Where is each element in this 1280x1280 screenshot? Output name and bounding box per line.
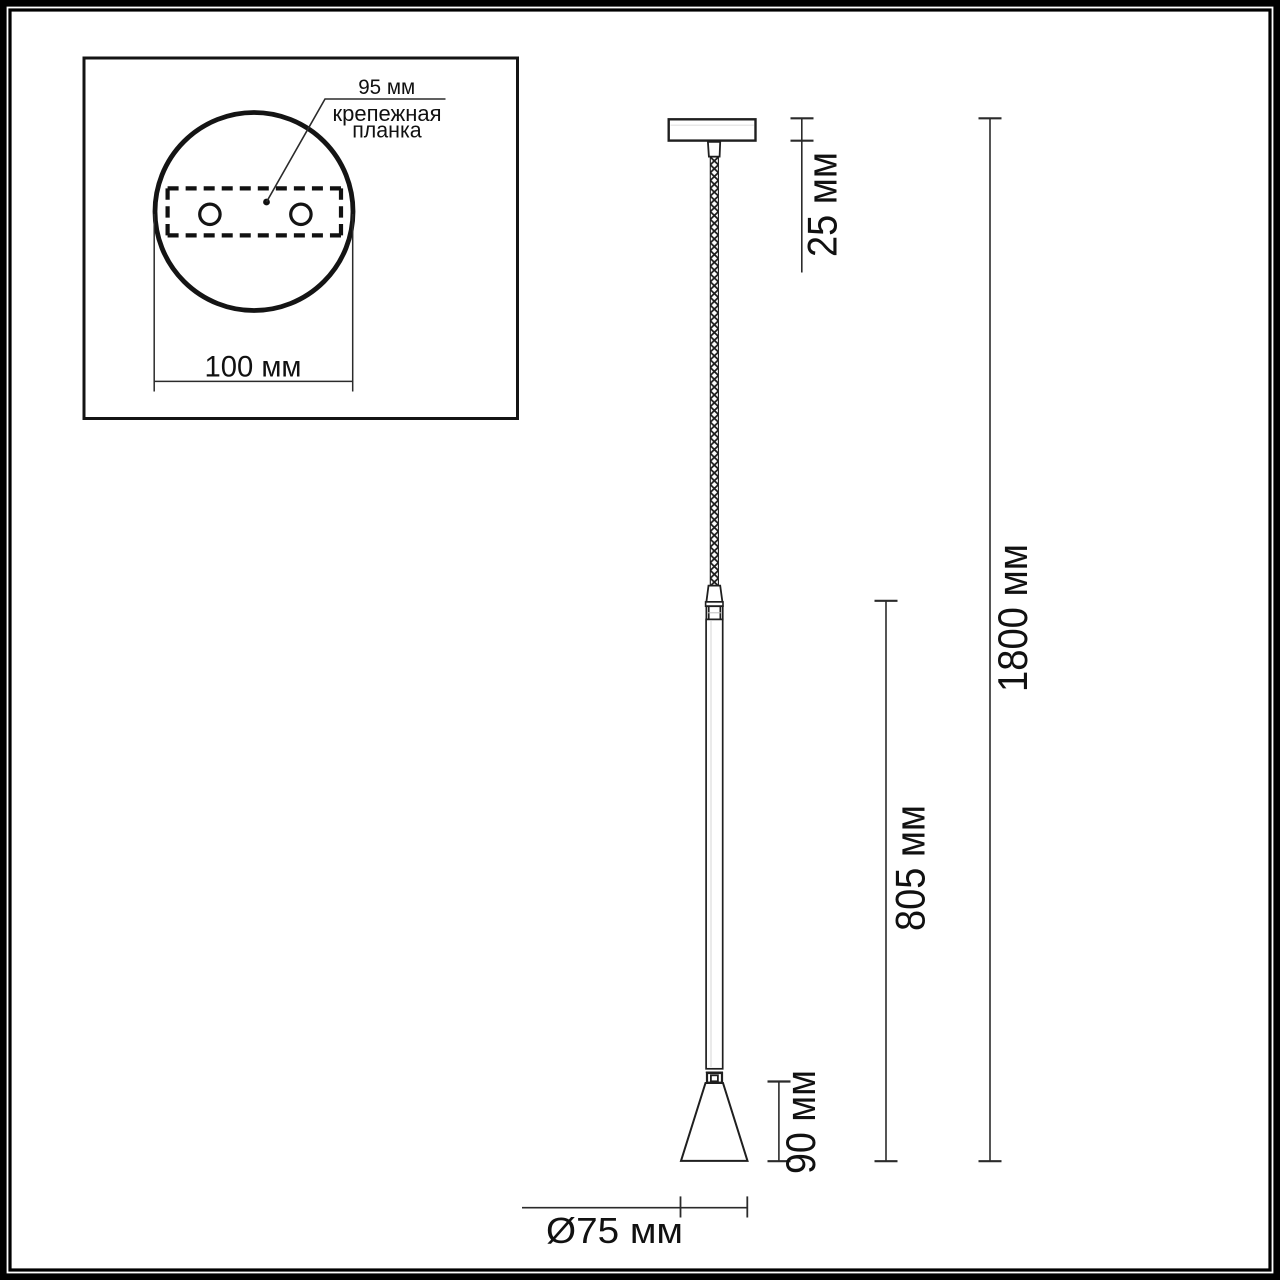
svg-text:планка: планка: [352, 117, 422, 142]
svg-text:Ø75 мм: Ø75 мм: [546, 1210, 683, 1251]
svg-text:90 мм: 90 мм: [777, 1070, 824, 1174]
svg-text:100 мм: 100 мм: [205, 351, 302, 384]
svg-text:805 мм: 805 мм: [887, 805, 934, 931]
svg-text:1800 мм: 1800 мм: [989, 544, 1036, 692]
svg-text:25 мм: 25 мм: [799, 152, 846, 257]
svg-text:95 мм: 95 мм: [358, 75, 415, 99]
